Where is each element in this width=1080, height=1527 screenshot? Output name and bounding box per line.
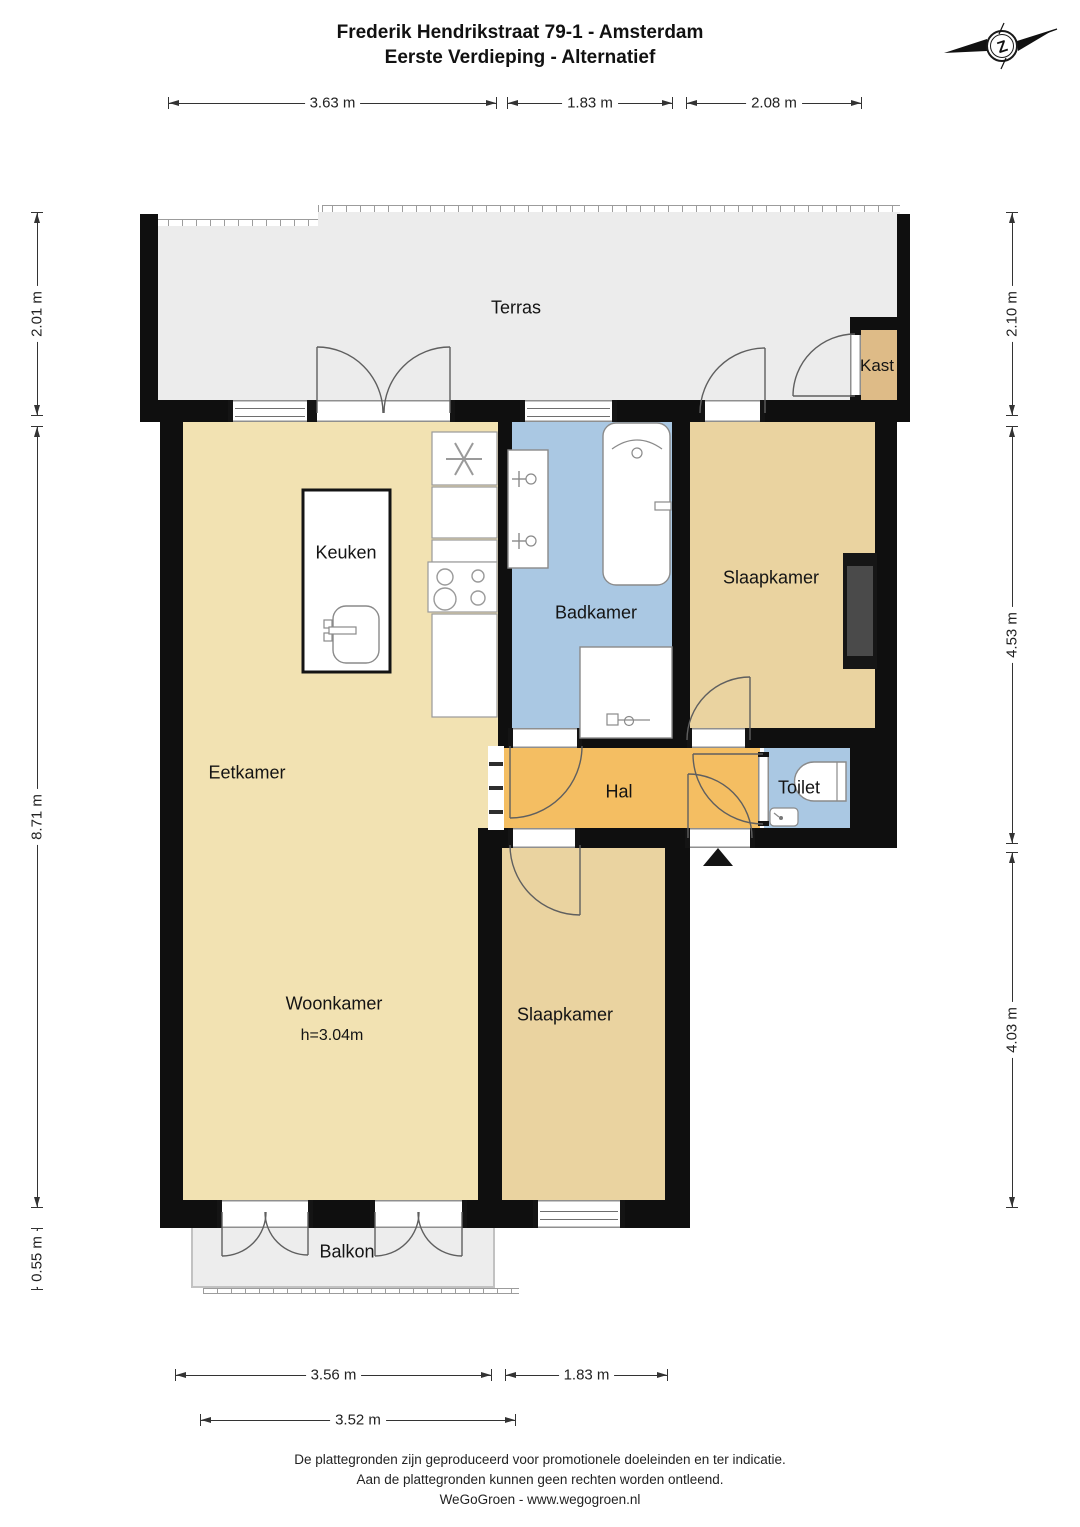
dim-arrow-left: [169, 100, 179, 106]
dim-label: 3.56 m: [306, 1367, 362, 1384]
dim-left-main: 8.71 m: [28, 426, 46, 1208]
dim-tick: [861, 97, 862, 109]
dim-tick: [491, 1369, 492, 1381]
dim-label: 0.55 m: [29, 1231, 46, 1287]
dim-arrow-up: [34, 427, 40, 437]
footer-line2: Aan de plattegronden kunnen geen rechten…: [0, 1470, 1080, 1490]
dim-label: 2.01 m: [29, 286, 46, 342]
dim-arrow-right: [505, 1417, 515, 1423]
dim-tick: [31, 1207, 43, 1208]
dim-arrow-right: [657, 1372, 667, 1378]
dim-tick: [667, 1369, 668, 1381]
dim-tick: [1006, 843, 1018, 844]
dim-arrow-up: [34, 213, 40, 223]
dim-arrow-down: [34, 1197, 40, 1207]
dim-label: 3.52 m: [330, 1412, 386, 1429]
dim-arrow-left: [201, 1417, 211, 1423]
dim-arrow-up: [1009, 427, 1015, 437]
dim-arrow-up: [1009, 853, 1015, 863]
dim-tick: [31, 1289, 43, 1290]
dim-top-3: 2.08 m: [686, 94, 862, 112]
dim-right-terras: 2.10 m: [1003, 212, 1021, 416]
dim-left-balkon: 0.55 m: [28, 1228, 46, 1290]
dim-label: 2.10 m: [1004, 286, 1021, 342]
dim-arrow-up: [1009, 213, 1015, 223]
dim-arrow-down: [1009, 405, 1015, 415]
dim-arrow-left: [508, 100, 518, 106]
dim-arrow-down: [1009, 833, 1015, 843]
dim-tick: [31, 415, 43, 416]
dim-arrow-right: [486, 100, 496, 106]
dim-label: 8.71 m: [29, 789, 46, 845]
dim-arrow-left: [506, 1372, 516, 1378]
dim-arrow-left: [687, 100, 697, 106]
dim-label: 2.08 m: [746, 95, 802, 112]
dim-arrow-down: [1009, 1197, 1015, 1207]
dim-tick: [496, 97, 497, 109]
dim-label: 1.83 m: [559, 1367, 615, 1384]
dimensions-layer: 3.63 m1.83 m2.08 m3.56 m1.83 m3.52 m2.01…: [0, 0, 1080, 1527]
dim-label: 3.63 m: [305, 95, 361, 112]
dim-right-upper: 4.53 m: [1003, 426, 1021, 844]
dim-arrow-down: [34, 405, 40, 415]
dim-tick: [515, 1414, 516, 1426]
dim-right-lower: 4.03 m: [1003, 852, 1021, 1208]
dim-arrow-right: [662, 100, 672, 106]
footer-disclaimer: De plattegronden zijn geproduceerd voor …: [0, 1450, 1080, 1510]
dim-label: 1.83 m: [562, 95, 618, 112]
dim-tick: [1006, 415, 1018, 416]
dim-bottom-2: 1.83 m: [505, 1366, 668, 1384]
dim-arrow-right: [851, 100, 861, 106]
floorplan-page: Frederik Hendrikstraat 79-1 - Amsterdam …: [0, 0, 1080, 1527]
dim-tick: [1006, 1207, 1018, 1208]
dim-bottom-1: 3.56 m: [175, 1366, 492, 1384]
dim-bottom-3: 3.52 m: [200, 1411, 516, 1429]
footer-line3: WeGoGroen - www.wegogroen.nl: [0, 1490, 1080, 1510]
dim-top-1: 3.63 m: [168, 94, 497, 112]
dim-label: 4.03 m: [1004, 1002, 1021, 1058]
dim-label: 4.53 m: [1004, 607, 1021, 663]
footer-line1: De plattegronden zijn geproduceerd voor …: [0, 1450, 1080, 1470]
dim-arrow-left: [176, 1372, 186, 1378]
dim-arrow-right: [481, 1372, 491, 1378]
dim-left-terras: 2.01 m: [28, 212, 46, 416]
dim-top-2: 1.83 m: [507, 94, 673, 112]
dim-tick: [672, 97, 673, 109]
